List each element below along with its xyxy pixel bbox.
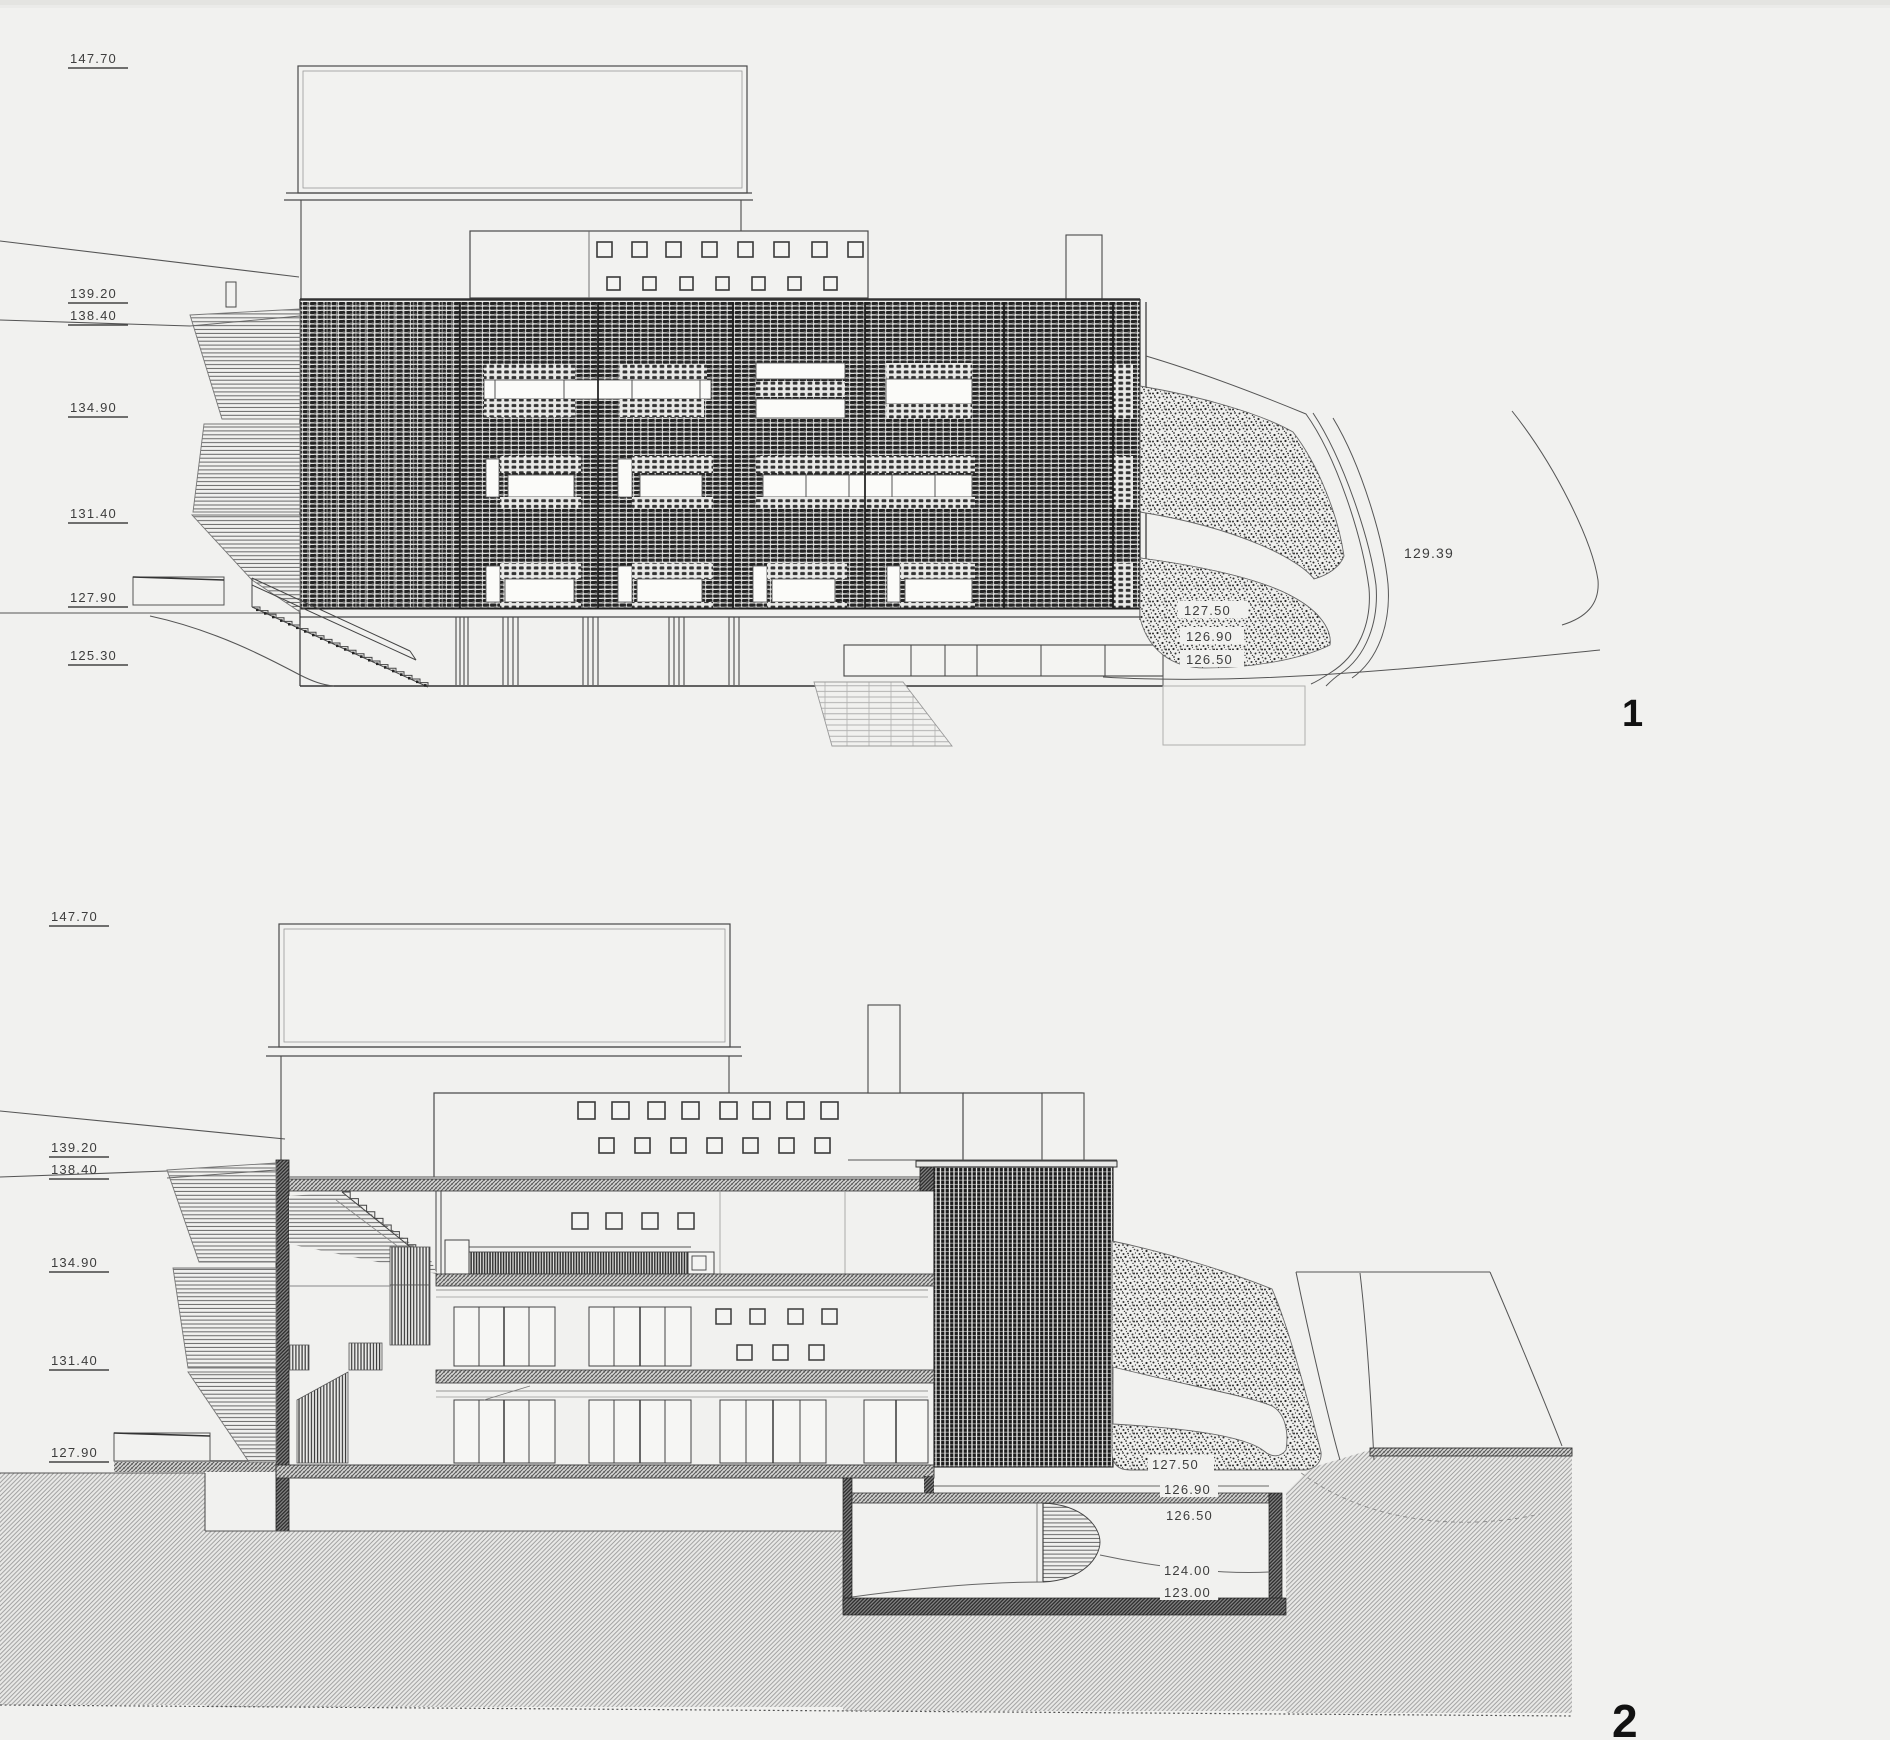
svg-text:147.70: 147.70 — [70, 51, 117, 66]
svg-text:127.50: 127.50 — [1152, 1457, 1199, 1472]
svg-text:127.90: 127.90 — [51, 1445, 98, 1460]
svg-text:127.90: 127.90 — [70, 590, 117, 605]
svg-text:124.00: 124.00 — [1164, 1563, 1211, 1578]
svg-text:134.90: 134.90 — [70, 400, 117, 415]
svg-text:125.30: 125.30 — [70, 648, 117, 663]
svg-text:126.90: 126.90 — [1186, 629, 1233, 644]
svg-text:123.00: 123.00 — [1164, 1585, 1211, 1600]
svg-text:138.40: 138.40 — [51, 1162, 98, 1177]
svg-text:138.40: 138.40 — [70, 308, 117, 323]
svg-text:126.50: 126.50 — [1186, 652, 1233, 667]
svg-text:129.39: 129.39 — [1404, 545, 1454, 561]
svg-text:139.20: 139.20 — [51, 1140, 98, 1155]
svg-text:134.90: 134.90 — [51, 1255, 98, 1270]
svg-text:131.40: 131.40 — [51, 1353, 98, 1368]
svg-text:139.20: 139.20 — [70, 286, 117, 301]
svg-text:2: 2 — [1612, 1695, 1638, 1740]
svg-text:126.90: 126.90 — [1164, 1482, 1211, 1497]
svg-text:127.50: 127.50 — [1184, 603, 1231, 618]
svg-text:147.70: 147.70 — [51, 909, 98, 924]
svg-text:131.40: 131.40 — [70, 506, 117, 521]
svg-text:1: 1 — [1622, 693, 1643, 735]
svg-text:126.50: 126.50 — [1166, 1508, 1213, 1523]
